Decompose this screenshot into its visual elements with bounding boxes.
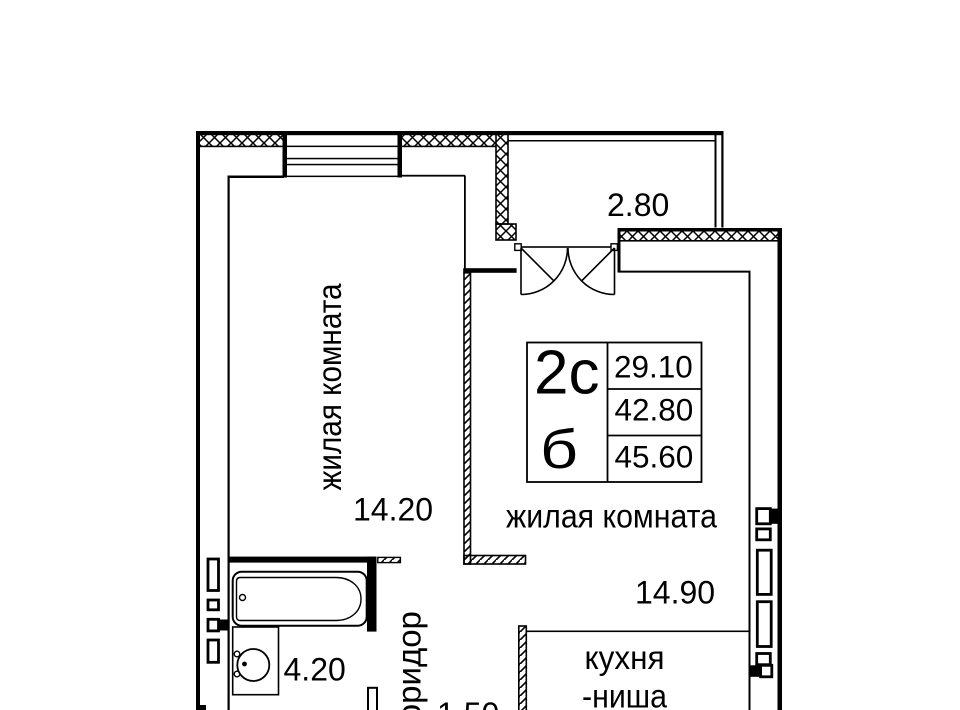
svg-text:-ниша: -ниша (582, 678, 668, 710)
svg-text:2.80: 2.80 (607, 187, 669, 223)
svg-text:14.20: 14.20 (353, 492, 433, 528)
svg-text:кухня: кухня (585, 639, 665, 676)
svg-text:коридор: коридор (391, 611, 428, 710)
svg-text:29.10: 29.10 (614, 349, 693, 385)
svg-text:42.80: 42.80 (615, 392, 694, 428)
svg-text:1.50: 1.50 (437, 696, 499, 710)
svg-text:б: б (540, 418, 578, 480)
svg-text:14.90: 14.90 (635, 575, 715, 611)
svg-text:жилая комната: жилая комната (311, 283, 348, 491)
svg-text:4.20: 4.20 (284, 652, 346, 688)
svg-text:жилая комната: жилая комната (506, 498, 718, 535)
svg-text:45.60: 45.60 (615, 439, 694, 475)
svg-text:2с: 2с (534, 339, 599, 408)
